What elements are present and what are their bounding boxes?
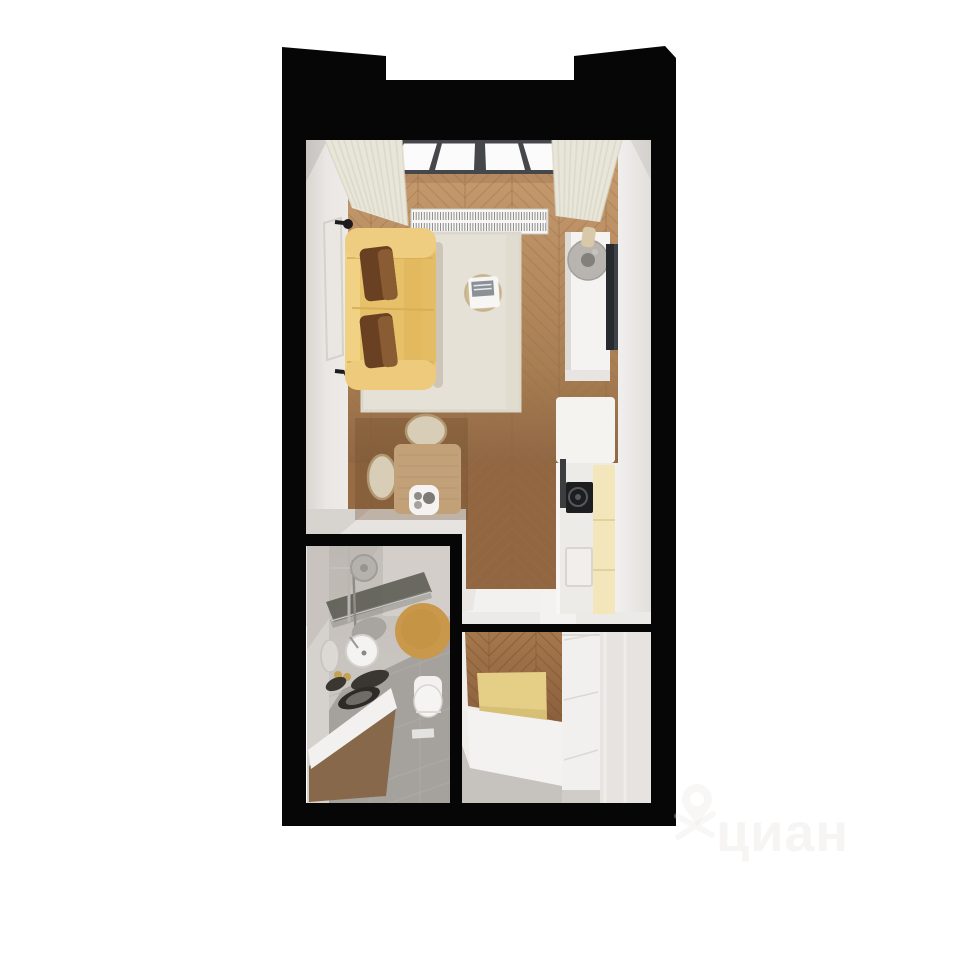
svg-text:циан: циан xyxy=(716,803,849,863)
